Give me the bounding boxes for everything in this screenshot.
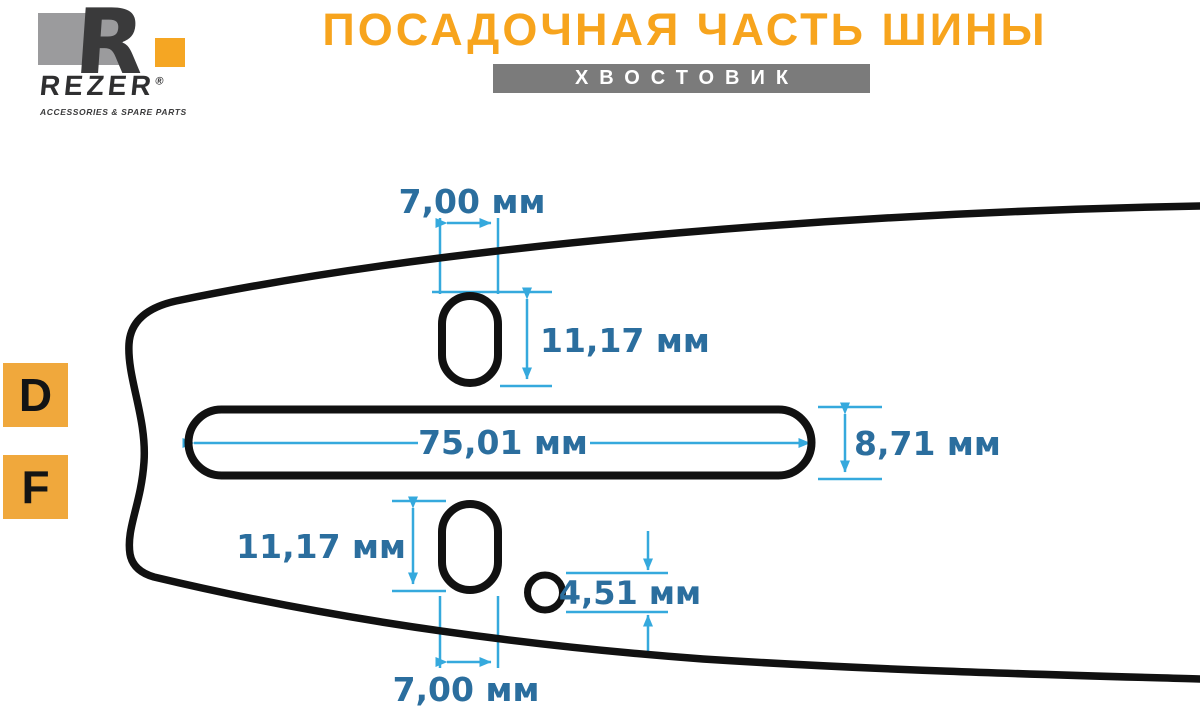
infographic-canvas: ПОСАДОЧНАЯ ЧАСТЬ ШИНЫ ХВОСТОВИК R REZER®… [0, 0, 1200, 706]
dim-lower-slot-height-label: 11,17 мм [236, 527, 406, 566]
bar-tail-diagram: 7,00 мм 11,17 мм 75,01 мм 8,71 мм 11,17 … [0, 0, 1200, 706]
dim-main-slot-length-label: 75,01 мм [418, 423, 588, 462]
dim-upper-slot-height-label: 11,17 мм [540, 321, 710, 360]
oil-hole-shape [528, 575, 563, 610]
dim-bottom-width-label: 7,00 мм [393, 670, 540, 706]
upper-slot-shape [442, 296, 498, 383]
dim-oil-hole-diameter-label: 4,51 мм [559, 574, 701, 612]
lower-slot-shape [442, 504, 498, 590]
dim-main-slot-height-label: 8,71 мм [854, 424, 1001, 463]
dim-top-width-label: 7,00 мм [399, 182, 546, 221]
